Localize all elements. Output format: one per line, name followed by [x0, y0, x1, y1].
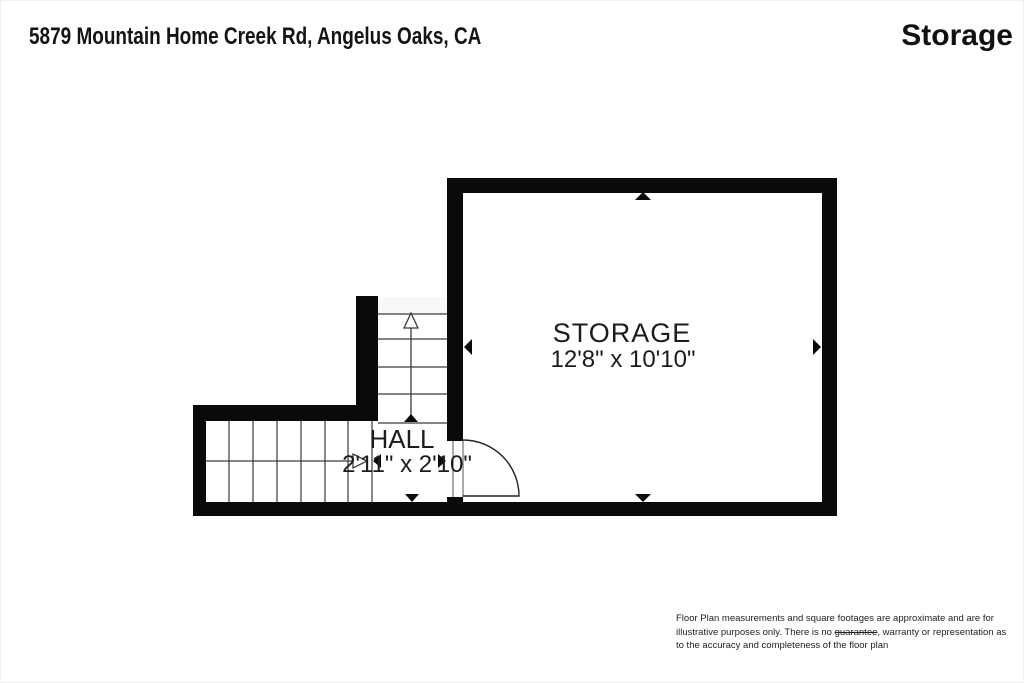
floor-plan-page: 5879 Mountain Home Creek Rd, Angelus Oak…	[0, 0, 1024, 683]
walls	[193, 178, 837, 516]
wall-segment	[193, 405, 378, 421]
dimension-arrow-left-icon	[464, 339, 472, 355]
wall-segment	[822, 178, 837, 516]
disclaimer-text: Floor Plan measurements and square foota…	[676, 612, 1010, 653]
dimension-arrow-up-icon	[635, 192, 651, 200]
dimension-arrow-down-icon	[405, 494, 419, 502]
stair-landing	[378, 297, 447, 314]
room-dimensions-storage: 12'8" x 10'10"	[551, 346, 696, 374]
room-label-storage: STORAGE	[553, 318, 692, 349]
wall-segment	[193, 405, 206, 516]
wall-segment	[447, 178, 463, 441]
dimension-arrow-right-icon	[813, 339, 821, 355]
wall-segment	[447, 497, 463, 504]
stair-up-arrow-icon	[404, 313, 418, 328]
dimension-arrow-up-icon	[404, 414, 418, 422]
wall-segment	[193, 502, 837, 516]
wall-segment	[447, 178, 837, 193]
disclaimer-struck-word: guarantee	[835, 627, 878, 638]
room-dimensions-hall: 2'11" x 2'10"	[342, 451, 472, 479]
floor-plan-drawing	[1, 1, 1024, 683]
wall-segment	[356, 296, 378, 421]
dimension-arrow-down-icon	[635, 494, 651, 502]
